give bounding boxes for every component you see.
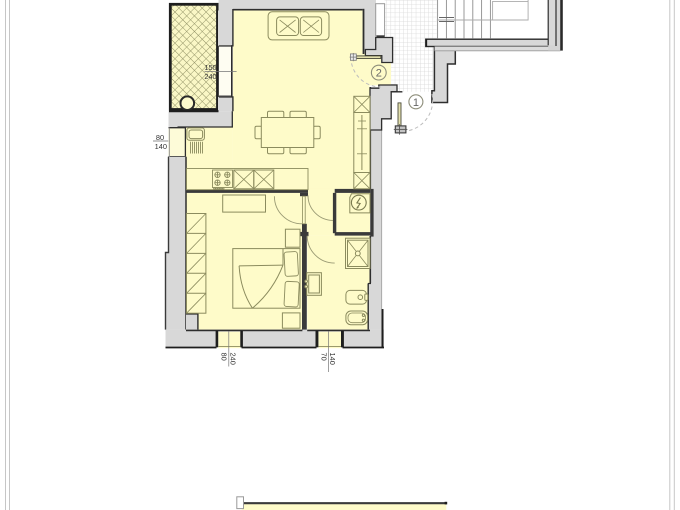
svg-text:2: 2 [376,68,382,80]
svg-text:140: 140 [155,142,167,151]
svg-text:80: 80 [220,353,229,361]
svg-text:240: 240 [204,72,216,81]
svg-text:240: 240 [228,353,237,365]
svg-text:1: 1 [413,97,419,109]
svg-text:140: 140 [328,353,337,365]
svg-text:70: 70 [319,353,328,361]
